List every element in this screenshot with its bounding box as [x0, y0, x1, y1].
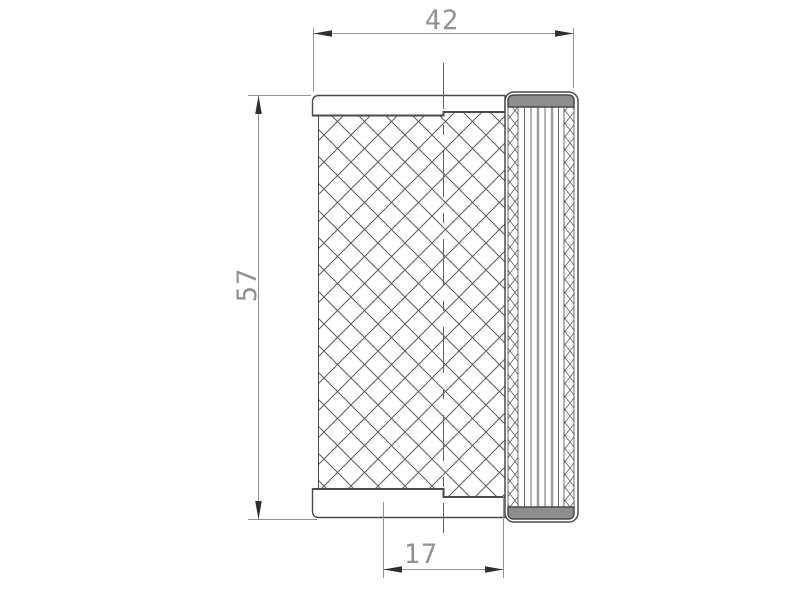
filter-body-section — [313, 96, 506, 518]
drawing-canvas: 42 57 17 — [0, 0, 800, 600]
arrowhead-right-icon — [555, 30, 574, 37]
filter-element-technical-drawing: 42 57 17 — [0, 0, 800, 600]
arrowhead-left-icon — [384, 566, 403, 573]
arrowhead-left-icon — [314, 30, 333, 37]
arrowhead-top-icon — [255, 96, 262, 115]
dimension-height-value: 57 — [232, 268, 263, 303]
dimension-height: 57 — [232, 96, 317, 520]
dimension-inner-width-value: 17 — [404, 539, 439, 570]
bottom-gasket — [508, 507, 574, 519]
fine-hatch-right-seam — [564, 107, 574, 507]
pleated-element-side-view — [505, 92, 578, 522]
dimension-width-value: 42 — [425, 5, 460, 36]
top-gasket — [508, 95, 574, 107]
arrowhead-right-icon — [485, 566, 504, 573]
fine-hatch-left-seam — [508, 107, 518, 507]
arrowhead-bottom-icon — [255, 501, 262, 520]
filter-media-crosshatch — [319, 112, 506, 497]
